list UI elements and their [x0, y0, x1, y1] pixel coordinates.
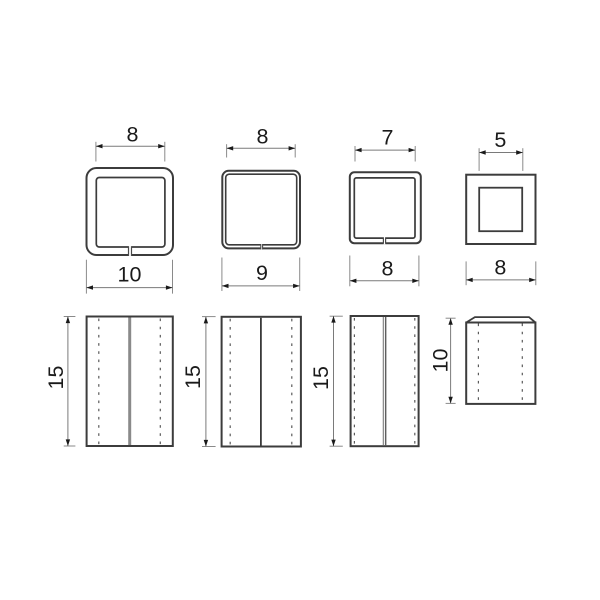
svg-text:15: 15: [309, 366, 333, 390]
svg-text:10: 10: [429, 349, 453, 373]
svg-text:5: 5: [494, 128, 506, 152]
svg-text:8: 8: [494, 256, 506, 280]
svg-text:15: 15: [181, 365, 205, 389]
svg-text:10: 10: [118, 262, 142, 286]
svg-text:8: 8: [382, 256, 394, 280]
svg-text:8: 8: [127, 123, 139, 147]
svg-text:8: 8: [257, 125, 269, 149]
svg-text:15: 15: [44, 366, 68, 390]
svg-text:9: 9: [256, 261, 268, 285]
svg-text:7: 7: [382, 126, 394, 150]
